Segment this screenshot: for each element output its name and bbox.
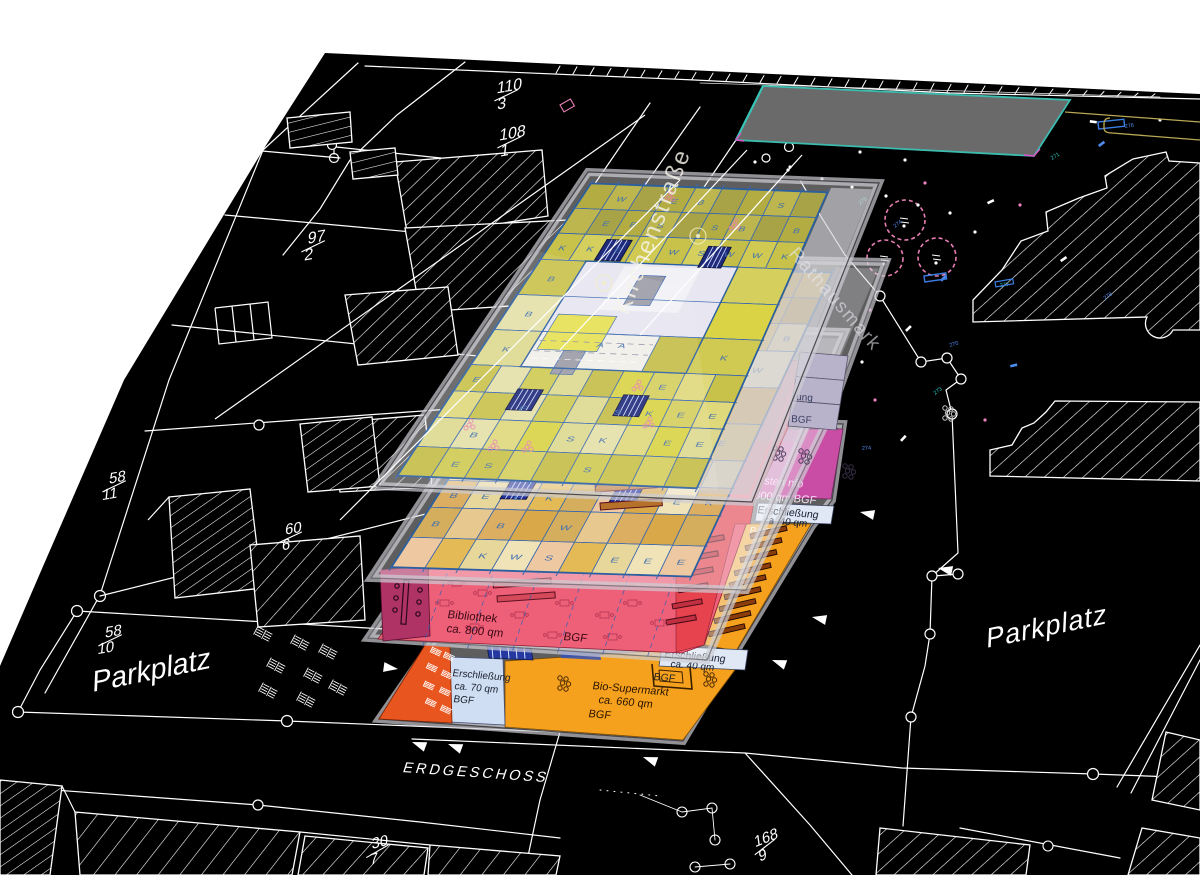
svg-text:BGF: BGF [587,708,612,722]
svg-text:6: 6 [281,536,291,554]
svg-text:7: 7 [370,850,378,869]
svg-text:BGF: BGF [452,694,475,707]
svg-text:274: 274 [862,445,872,452]
svg-text:10: 10 [97,638,115,658]
svg-text:BGF: BGF [652,671,676,685]
svg-text:BGF: BGF [562,631,588,645]
svg-text:11: 11 [101,484,118,504]
svg-text:276: 276 [1124,123,1134,130]
svg-text:BGF: BGF [791,414,812,426]
